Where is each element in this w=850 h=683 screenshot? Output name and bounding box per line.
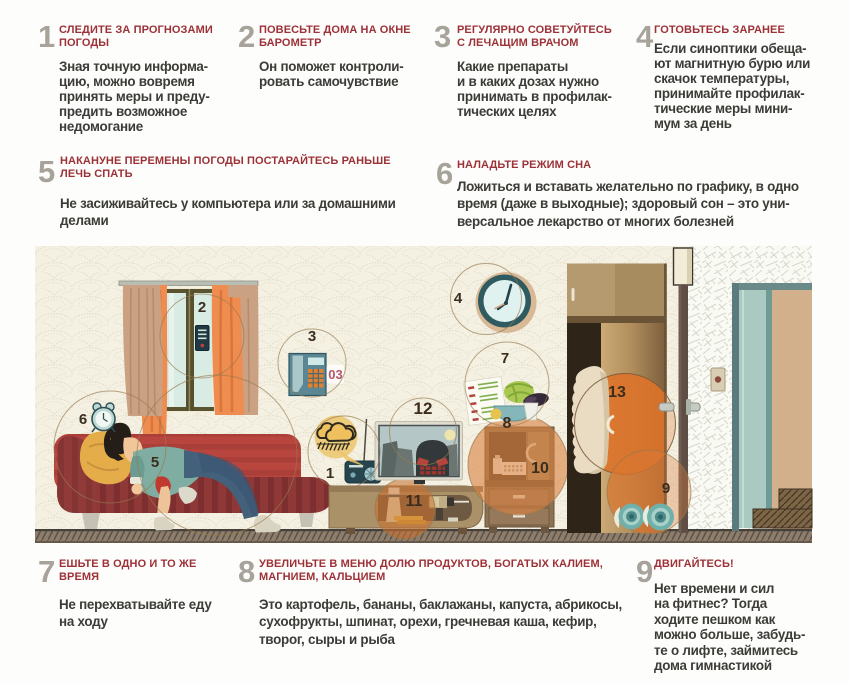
svg-text:4: 4 [454,290,463,307]
svg-text:03: 03 [328,367,342,382]
svg-text:1: 1 [326,465,334,482]
svg-text:11: 11 [406,493,423,510]
svg-text:7: 7 [501,350,509,367]
svg-text:3: 3 [308,328,316,345]
svg-text:10: 10 [531,460,549,477]
svg-text:13: 13 [608,384,626,401]
svg-text:9: 9 [662,480,670,497]
svg-text:12: 12 [414,399,433,418]
svg-text:5: 5 [151,454,159,471]
svg-text:2: 2 [198,299,206,316]
svg-text:6: 6 [79,411,87,428]
svg-text:8: 8 [503,415,512,432]
